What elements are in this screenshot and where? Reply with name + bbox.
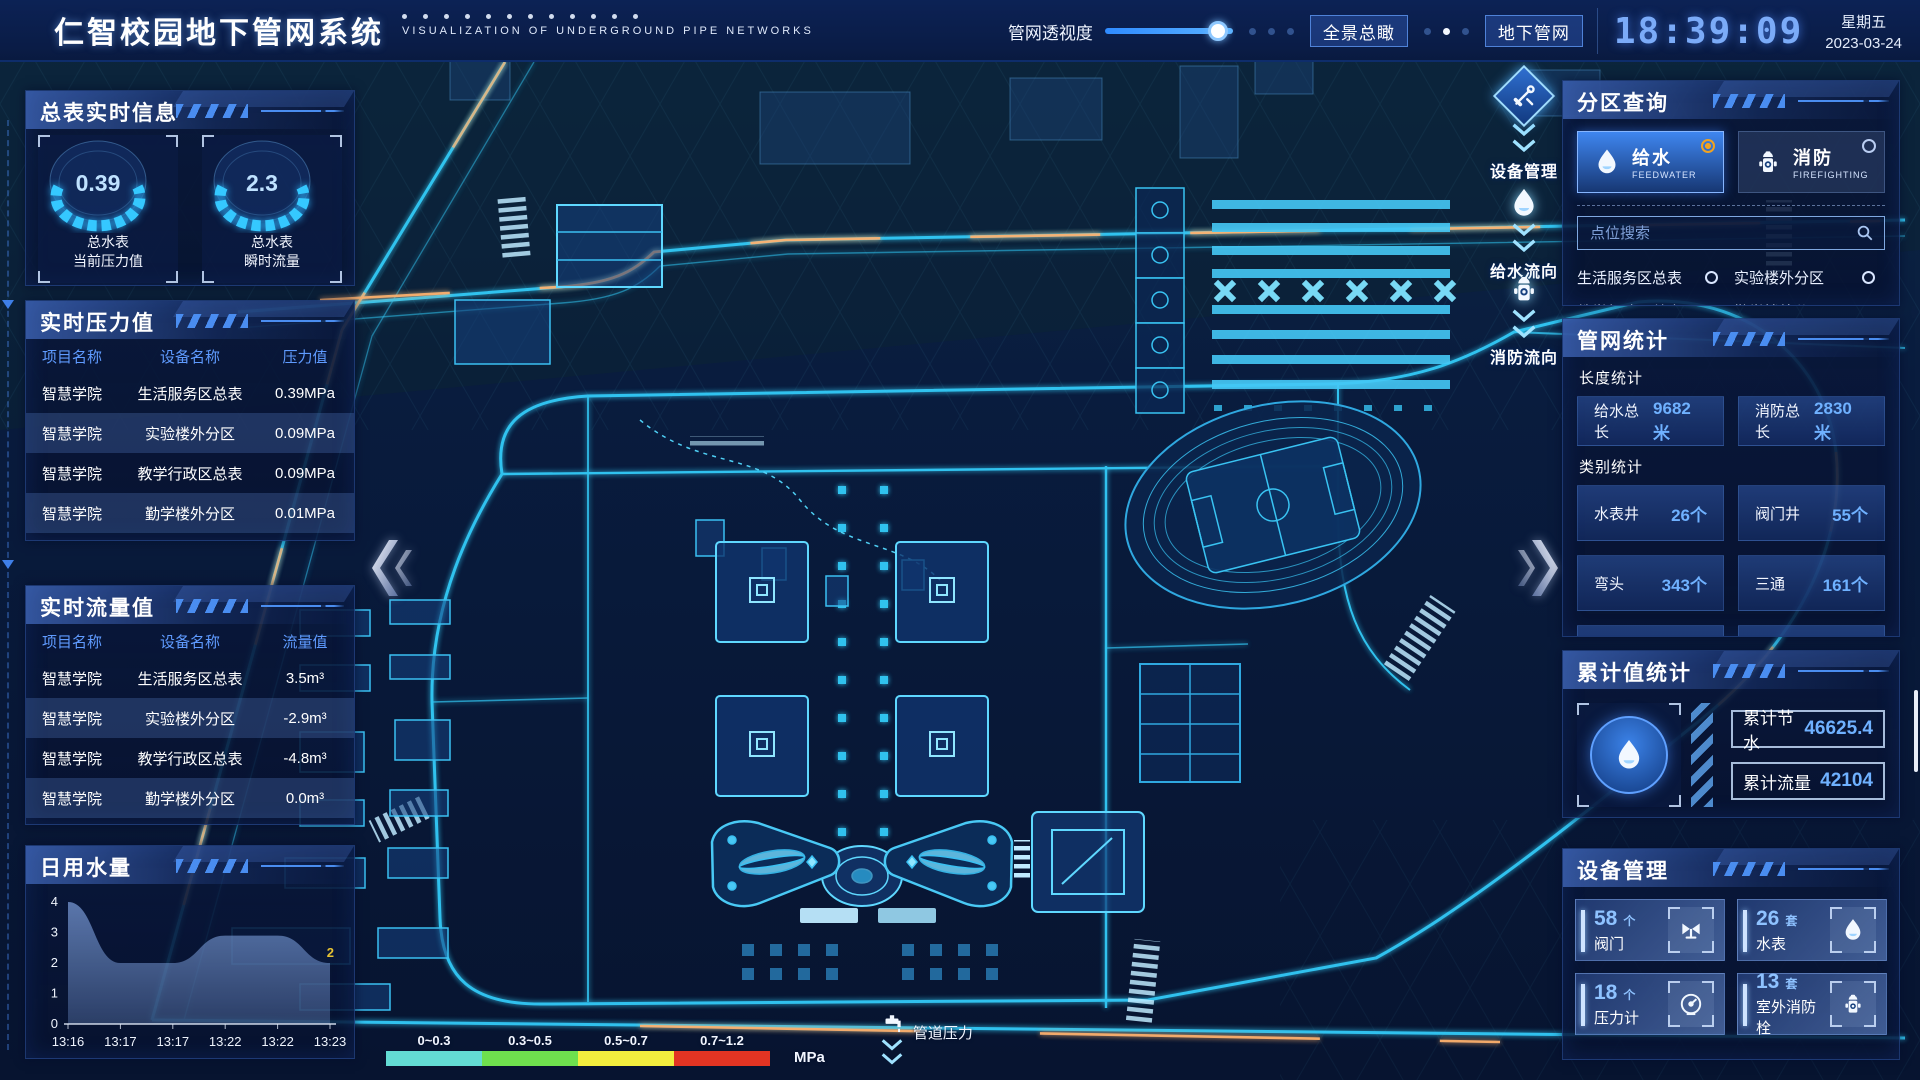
device-unit: 个 bbox=[1623, 988, 1635, 1002]
device-count: 18个 bbox=[1594, 981, 1639, 1005]
tools-icon bbox=[1511, 83, 1537, 109]
table-row: 智慧学院勤学楼外分区0.01MPa bbox=[26, 493, 354, 533]
stat-box bbox=[1738, 625, 1885, 637]
radio-icon[interactable] bbox=[1862, 139, 1876, 153]
device-card-water-drop[interactable]: 26套 水表 bbox=[1737, 899, 1887, 961]
water-drop-icon bbox=[1611, 737, 1647, 773]
slash-decor bbox=[1713, 664, 1785, 678]
zone-tab-feedwater[interactable]: 给水FEEDWATER bbox=[1577, 131, 1724, 193]
line-decor bbox=[261, 110, 344, 112]
slider-handle[interactable] bbox=[1208, 21, 1228, 41]
zone-tab-label: 消防 bbox=[1793, 144, 1869, 170]
legend-range-label: 0.3~0.5 bbox=[482, 1033, 578, 1048]
stat-box: 水表井26个 bbox=[1577, 485, 1724, 541]
stat-box: 给水总长9682米 bbox=[1577, 396, 1724, 446]
panel-title: 实时流量值 bbox=[40, 592, 155, 622]
table-row: 智慧学院生活服务区总表3.5m³ bbox=[26, 658, 354, 698]
device-count: 13套 bbox=[1756, 970, 1830, 994]
clock: 18:39:09 bbox=[1614, 11, 1803, 52]
cumulative-value: 42104 bbox=[1820, 770, 1873, 792]
line-decor bbox=[1798, 670, 1889, 672]
page-scrollbar[interactable] bbox=[1914, 690, 1918, 772]
dots-decor bbox=[1424, 28, 1469, 35]
svg-text:4: 4 bbox=[51, 894, 58, 909]
legend-color-bar bbox=[386, 1051, 770, 1066]
zone-tab-sublabel: FIREFIGHTING bbox=[1793, 170, 1869, 180]
title-dots bbox=[402, 14, 814, 19]
table-header: 项目名称设备名称压力值 bbox=[26, 339, 354, 373]
point-search[interactable] bbox=[1577, 216, 1885, 250]
zone-item-label: 生活服务区总表 bbox=[1577, 267, 1682, 288]
panel-zone-query: 分区查询 给水FEEDWATER 消防FIREFIGHTING 生活服务区总表 … bbox=[1562, 80, 1900, 306]
svg-text:2: 2 bbox=[327, 945, 334, 960]
radio-icon bbox=[1705, 271, 1718, 284]
device-label: 水表 bbox=[1756, 933, 1797, 954]
gym bbox=[1014, 812, 1144, 912]
water-drop-icon bbox=[1592, 147, 1622, 177]
panorama-button[interactable]: 全景总瞰 bbox=[1310, 15, 1408, 47]
search-input[interactable] bbox=[1588, 224, 1848, 243]
stat-box: 三通161个 bbox=[1738, 555, 1885, 611]
svg-text:13:16: 13:16 bbox=[52, 1034, 85, 1049]
faucet-icon bbox=[879, 1012, 905, 1066]
map-next-arrow[interactable] bbox=[1518, 540, 1558, 596]
device-count: 26套 bbox=[1756, 907, 1797, 931]
stat-label: 三通 bbox=[1755, 573, 1785, 594]
panel-daily-usage: 日用水量 4321013:1613:1713:1713:2213:2213:23… bbox=[25, 845, 355, 1059]
svg-text:13:22: 13:22 bbox=[261, 1034, 294, 1049]
zone-item-label: 教学行政区总表 bbox=[1577, 301, 1682, 307]
hydrant-icon bbox=[1507, 272, 1541, 306]
edge-arrow bbox=[2, 300, 14, 309]
gauge-label: 总水表当前压力值 bbox=[38, 233, 178, 271]
svg-text:3: 3 bbox=[51, 925, 58, 940]
table-row: 智慧学院生活服务区总表0.39MPa bbox=[26, 373, 354, 413]
pressure-legend: 0~0.30.3~0.50.5~0.70.7~1.2 MPa 管道压力 bbox=[386, 1012, 973, 1066]
stat-box: 消防总长2830米 bbox=[1738, 396, 1885, 446]
panel-pipe-stats: 管网统计 长度统计 给水总长9682米 消防总长2830米 类别统计 水表井26… bbox=[1562, 318, 1900, 637]
slash-decor bbox=[1713, 332, 1785, 346]
zone-tab-label: 给水 bbox=[1632, 144, 1697, 170]
table-row: 智慧学院教学行政区总表0.09MPa bbox=[26, 453, 354, 493]
device-unit: 套 bbox=[1785, 977, 1797, 991]
zone-list-item[interactable]: 实验楼外分区 bbox=[1734, 260, 1891, 294]
stat-label: 阀门井 bbox=[1755, 503, 1800, 524]
svg-text:2: 2 bbox=[51, 955, 58, 970]
gauge-value: 2.3 bbox=[246, 170, 278, 196]
line-decor bbox=[261, 865, 344, 867]
legend-unit: MPa bbox=[794, 1049, 825, 1066]
table-row: 智慧学院实验楼外分区0.09MPa bbox=[26, 413, 354, 453]
gauge-label: 总水表瞬时流量 bbox=[202, 233, 342, 271]
svg-text:13:23: 13:23 bbox=[314, 1034, 347, 1049]
radio-icon bbox=[1705, 305, 1718, 307]
stat-box: 阀门井55个 bbox=[1738, 485, 1885, 541]
device-card-hydrant[interactable]: 13套 室外消防栓 bbox=[1737, 973, 1887, 1035]
line-decor bbox=[1798, 868, 1889, 870]
cumulative-label: 累计流量 bbox=[1743, 769, 1811, 794]
panel-title: 日用水量 bbox=[40, 852, 132, 882]
cumulative-row: 累计节水46625.4 bbox=[1731, 710, 1885, 748]
length-stats-subtitle: 长度统计 bbox=[1579, 367, 1899, 388]
stat-label: 水表井 bbox=[1594, 503, 1639, 524]
weekday: 星期五 bbox=[1841, 11, 1886, 32]
device-card-pressure-gauge[interactable]: 18个 压力计 bbox=[1575, 973, 1725, 1035]
gauge-value: 0.39 bbox=[76, 170, 121, 196]
stat-value: 55个 bbox=[1832, 501, 1868, 526]
svg-text:13:17: 13:17 bbox=[157, 1034, 190, 1049]
pressure-gauge-icon bbox=[1678, 991, 1704, 1017]
table-row: 智慧学院砺学楼外分区2.3m³ bbox=[26, 818, 354, 825]
device-unit: 套 bbox=[1785, 914, 1797, 928]
basketball-courts bbox=[1136, 188, 1184, 413]
zone-item-label: 勤学楼外分区 bbox=[1734, 301, 1824, 307]
edge-arrow bbox=[2, 560, 14, 569]
table-header: 项目名称设备名称流量值 bbox=[26, 624, 354, 658]
zone-list-item[interactable]: 勤学楼外分区 bbox=[1734, 294, 1891, 306]
slash-decor bbox=[1713, 862, 1785, 876]
stat-value: 343个 bbox=[1662, 571, 1707, 596]
device-card-valve[interactable]: 58个 阀门 bbox=[1575, 899, 1725, 961]
radio-icon[interactable] bbox=[1701, 139, 1715, 153]
panel-title: 管网统计 bbox=[1577, 325, 1669, 355]
pipe-pressure-label: 管道压力 bbox=[913, 1022, 973, 1043]
cumulative-label: 累计节水 bbox=[1743, 704, 1804, 754]
water-drop-icon bbox=[1840, 917, 1866, 943]
search-icon[interactable] bbox=[1856, 224, 1874, 242]
app-subtitle: VISUALIZATION OF UNDERGROUND PIPE NETWOR… bbox=[402, 25, 814, 37]
overlay-label: 消防流向 bbox=[1490, 344, 1558, 368]
water-drop-icon bbox=[1507, 186, 1541, 220]
panel-cumulative: 累计值统计 累计节水46625.4 累计流量42104 bbox=[1562, 650, 1900, 818]
gauge-card: 0.39 总水表当前压力值 bbox=[38, 135, 178, 283]
svg-text:0: 0 bbox=[51, 1016, 58, 1031]
panel-realtime-pressure: 实时压力值 项目名称设备名称压力值智慧学院生活服务区总表0.39MPa智慧学院实… bbox=[25, 300, 355, 541]
device-label: 室外消防栓 bbox=[1756, 996, 1830, 1038]
slash-decor bbox=[176, 104, 248, 118]
device-count: 58个 bbox=[1594, 907, 1635, 931]
edge-decor bbox=[7, 120, 9, 1050]
opacity-slider-label: 管网透视度 bbox=[1008, 19, 1093, 44]
category-stats-subtitle: 类别统计 bbox=[1579, 456, 1899, 477]
header-bar: 仁智校园地下管网系统 VISUALIZATION OF UNDERGROUND … bbox=[0, 0, 1920, 62]
zone-tab-sublabel: FEEDWATER bbox=[1632, 170, 1697, 180]
zone-list-item[interactable]: 生活服务区总表 bbox=[1577, 260, 1734, 294]
device-label: 阀门 bbox=[1594, 933, 1635, 954]
app-title: 仁智校园地下管网系统 bbox=[54, 8, 384, 52]
gauge-card: 2.3 总水表瞬时流量 bbox=[202, 135, 342, 283]
valve-icon bbox=[1678, 917, 1704, 943]
stat-label: 消防总长 bbox=[1755, 400, 1814, 442]
stat-box: 弯头343个 bbox=[1577, 555, 1724, 611]
hydrant-icon bbox=[1840, 991, 1866, 1017]
panel-title: 累计值统计 bbox=[1577, 657, 1692, 687]
legend-range-label: 0.5~0.7 bbox=[578, 1033, 674, 1048]
table-row: 智慧学院实验楼外分区-2.9m³ bbox=[26, 698, 354, 738]
line-decor bbox=[261, 605, 344, 607]
zone-list-item[interactable]: 教学行政区总表 bbox=[1577, 294, 1734, 306]
stat-box bbox=[1577, 625, 1724, 637]
stat-value: 9682米 bbox=[1653, 399, 1707, 444]
line-decor bbox=[1798, 338, 1889, 340]
solar-grid bbox=[1140, 664, 1240, 782]
device-unit: 个 bbox=[1623, 914, 1635, 928]
radio-icon bbox=[1862, 271, 1875, 284]
map-prev-arrow[interactable] bbox=[372, 540, 412, 596]
panel-realtime-info: 总表实时信息 0.39 总水表当前压力值 2.3 总水表瞬时流量 bbox=[25, 90, 355, 286]
legend-range-label: 0~0.3 bbox=[386, 1033, 482, 1048]
cumulative-icon-card bbox=[1577, 703, 1681, 807]
date: 2023-03-24 bbox=[1825, 35, 1902, 52]
panel-title: 设备管理 bbox=[1577, 855, 1669, 885]
slash-decor bbox=[176, 314, 248, 328]
panel-title: 总表实时信息 bbox=[40, 97, 178, 127]
stat-label: 弯头 bbox=[1594, 573, 1624, 594]
slash-decor bbox=[176, 599, 248, 613]
cumulative-row: 累计流量42104 bbox=[1731, 762, 1885, 800]
hydrant-icon bbox=[1753, 147, 1783, 177]
svg-text:13:22: 13:22 bbox=[209, 1034, 242, 1049]
stat-value: 26个 bbox=[1671, 501, 1707, 526]
panel-device-management: 设备管理 58个 阀门 26套 水表 18个 压力计 13套 室外消防栓 bbox=[1562, 848, 1900, 1060]
dashed-divider bbox=[1577, 205, 1885, 206]
overlay-label: 设备管理 bbox=[1490, 158, 1558, 182]
panel-realtime-flow: 实时流量值 项目名称设备名称流量值智慧学院生活服务区总表3.5m³智慧学院实验楼… bbox=[25, 585, 355, 825]
stat-label: 给水总长 bbox=[1594, 400, 1653, 442]
hatch-decor bbox=[1691, 703, 1713, 807]
svg-text:1: 1 bbox=[51, 986, 58, 1001]
pressure-table: 项目名称设备名称压力值智慧学院生活服务区总表0.39MPa智慧学院实验楼外分区0… bbox=[26, 339, 354, 541]
line-decor bbox=[261, 320, 344, 322]
table-row: 智慧学院教学行政区总表-4.8m³ bbox=[26, 738, 354, 778]
slash-decor bbox=[176, 859, 248, 873]
svg-text:13:17: 13:17 bbox=[104, 1034, 137, 1049]
opacity-slider[interactable] bbox=[1105, 28, 1233, 34]
dashboard: 仁智校园地下管网系统 VISUALIZATION OF UNDERGROUND … bbox=[0, 0, 1920, 1080]
device-label: 压力计 bbox=[1594, 1007, 1639, 1028]
radio-icon bbox=[1862, 305, 1875, 307]
slash-decor bbox=[1713, 94, 1785, 108]
flow-table: 项目名称设备名称流量值智慧学院生活服务区总表3.5m³智慧学院实验楼外分区-2.… bbox=[26, 624, 354, 825]
zone-tab-firefighting[interactable]: 消防FIREFIGHTING bbox=[1738, 131, 1885, 193]
underground-pipes-button[interactable]: 地下管网 bbox=[1485, 15, 1583, 47]
table-row: 智慧学院砺学楼外分区0.02MPa bbox=[26, 533, 354, 541]
zone-item-label: 实验楼外分区 bbox=[1734, 267, 1824, 288]
legend-range-label: 0.7~1.2 bbox=[674, 1033, 770, 1048]
panel-title: 分区查询 bbox=[1577, 87, 1669, 117]
line-decor bbox=[1798, 100, 1889, 102]
table-row: 智慧学院勤学楼外分区0.0m³ bbox=[26, 778, 354, 818]
stat-value: 161个 bbox=[1823, 571, 1868, 596]
stat-value: 2830米 bbox=[1814, 399, 1868, 444]
dots-decor bbox=[1249, 28, 1294, 35]
daily-usage-chart: 4321013:1613:1713:1713:2213:2213:232 bbox=[32, 886, 348, 1054]
panel-title: 实时压力值 bbox=[40, 307, 155, 337]
cumulative-value: 46625.4 bbox=[1804, 718, 1873, 740]
